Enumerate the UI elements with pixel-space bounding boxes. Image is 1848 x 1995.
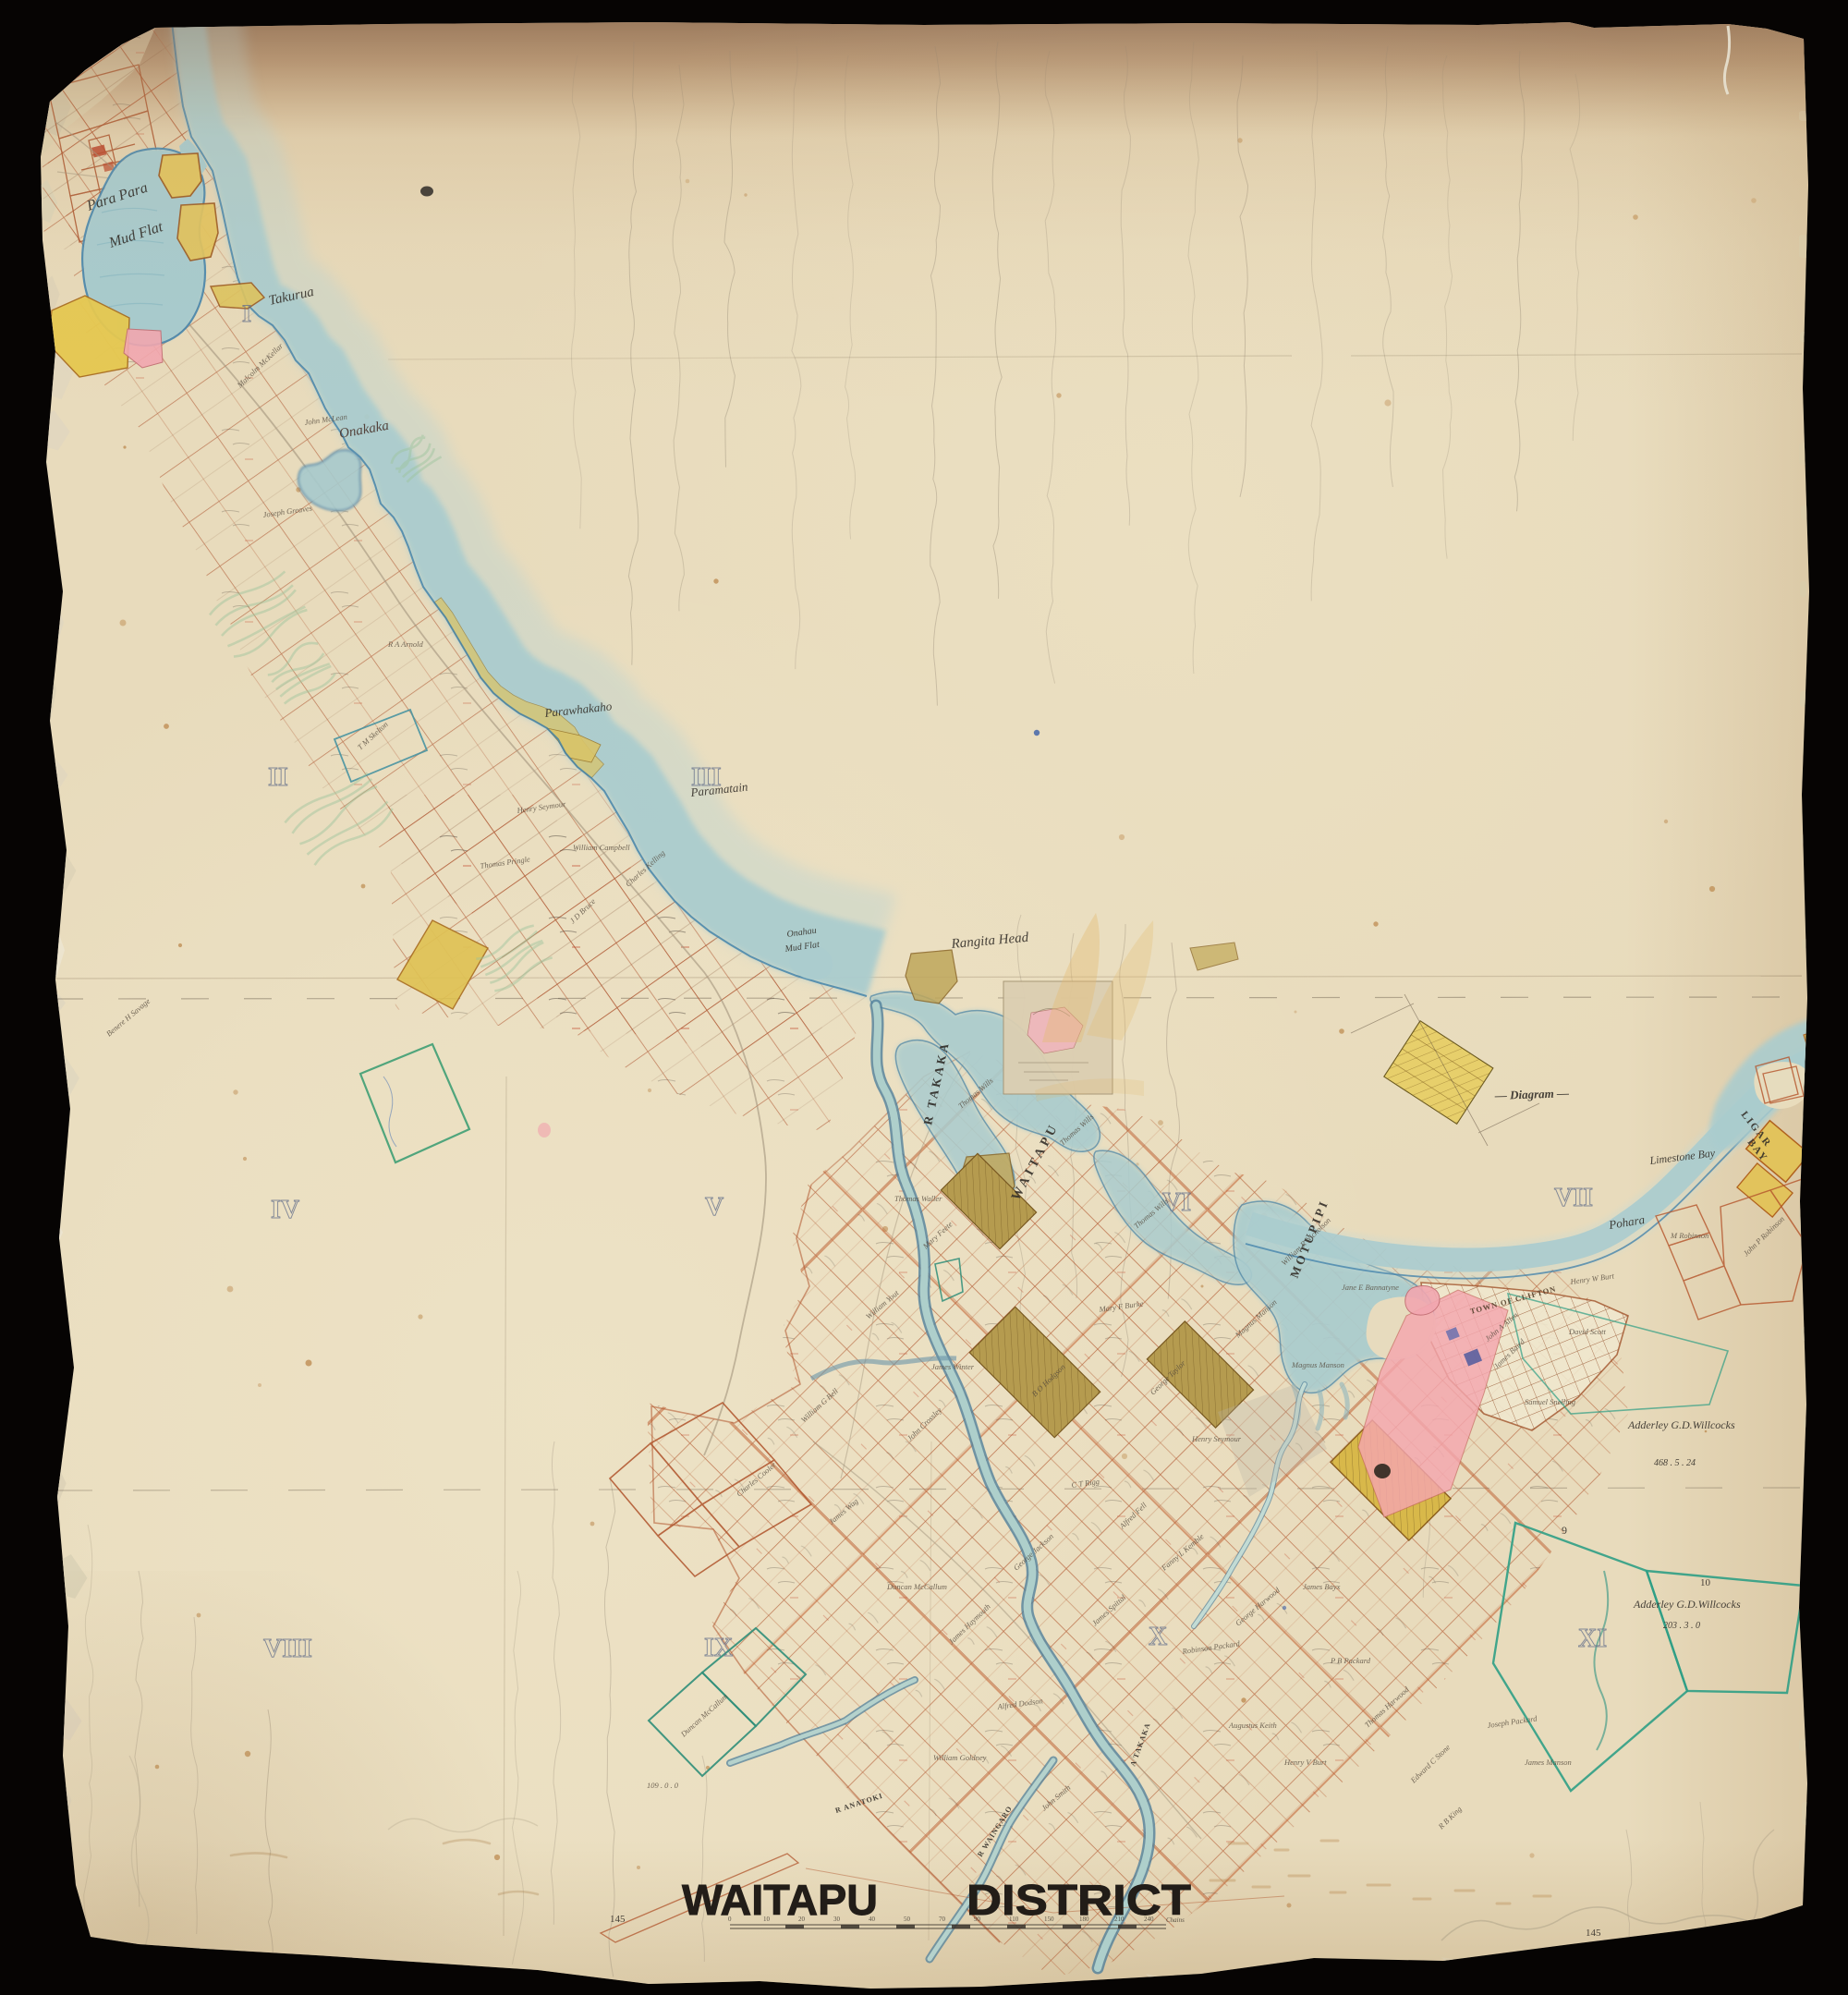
svg-text:Adderley G.D.Willcocks: Adderley G.D.Willcocks <box>1633 1598 1741 1611</box>
svg-text:David Scott: David Scott <box>1568 1327 1607 1336</box>
svg-text:Duncan McCallum: Duncan McCallum <box>886 1582 947 1591</box>
svg-text:X: X <box>1149 1623 1167 1651</box>
svg-text:William Goldney: William Goldney <box>933 1753 987 1762</box>
svg-text:— Diagram —: — Diagram — <box>1494 1086 1570 1102</box>
svg-text:I: I <box>242 300 251 327</box>
svg-text:70: 70 <box>939 1916 946 1923</box>
svg-text:20: 20 <box>798 1916 806 1923</box>
svg-text:William Campbell: William Campbell <box>573 843 630 852</box>
svg-text:109 . 0 . 0: 109 . 0 . 0 <box>647 1781 679 1790</box>
svg-text:Samuel Snelling: Samuel Snelling <box>1525 1397 1575 1406</box>
svg-text:Henry V Burt: Henry V Burt <box>1283 1758 1327 1767</box>
svg-text:40: 40 <box>869 1916 876 1923</box>
svg-text:210: 210 <box>1114 1916 1125 1923</box>
svg-text:II: II <box>268 763 288 792</box>
svg-text:IV: IV <box>271 1196 299 1224</box>
svg-text:90: 90 <box>974 1916 981 1923</box>
svg-text:V: V <box>705 1193 723 1222</box>
svg-text:145: 145 <box>1586 1928 1601 1939</box>
svg-text:240: 240 <box>1144 1916 1154 1923</box>
svg-text:XI: XI <box>1578 1624 1607 1653</box>
svg-text:IX: IX <box>704 1634 733 1662</box>
svg-text:Magnus Manson: Magnus Manson <box>1291 1360 1344 1369</box>
svg-text:Henry Seymour: Henry Seymour <box>1191 1434 1242 1443</box>
svg-text:M Robinson: M Robinson <box>1670 1231 1708 1240</box>
svg-text:WAITAPU: WAITAPU <box>682 1876 878 1924</box>
svg-text:Thomas Waller: Thomas Waller <box>894 1194 942 1203</box>
svg-text:R A Arnold: R A Arnold <box>387 639 424 649</box>
svg-text:VII: VII <box>1554 1184 1593 1212</box>
svg-text:Chains: Chains <box>1166 1916 1185 1924</box>
svg-text:30: 30 <box>833 1916 841 1923</box>
svg-text:James Winter: James Winter <box>931 1362 975 1371</box>
svg-text:180: 180 <box>1079 1916 1089 1923</box>
svg-text:10: 10 <box>1700 1577 1711 1588</box>
svg-text:9: 9 <box>1562 1524 1567 1537</box>
svg-text:James Manson: James Manson <box>1525 1758 1572 1767</box>
svg-text:James Bayx: James Bayx <box>1303 1582 1341 1591</box>
svg-text:VIII: VIII <box>263 1635 312 1663</box>
svg-text:50: 50 <box>904 1916 911 1923</box>
svg-text:Jane E Bannatyne: Jane E Bannatyne <box>1342 1283 1399 1292</box>
svg-text:468 . 5 . 24: 468 . 5 . 24 <box>1654 1458 1696 1468</box>
svg-text:Augustus Keith: Augustus Keith <box>1228 1721 1277 1730</box>
svg-text:145: 145 <box>610 1914 626 1925</box>
svg-text:110: 110 <box>1009 1916 1019 1923</box>
svg-text:Adderley G.D.Willcocks: Adderley G.D.Willcocks <box>1627 1418 1735 1431</box>
svg-text:10: 10 <box>763 1916 771 1923</box>
svg-text:150: 150 <box>1044 1916 1054 1923</box>
svg-text:0: 0 <box>728 1916 732 1923</box>
svg-text:203 . 3 . 0: 203 . 3 . 0 <box>1663 1621 1700 1631</box>
svg-text:P B Packard: P B Packard <box>1330 1656 1371 1665</box>
